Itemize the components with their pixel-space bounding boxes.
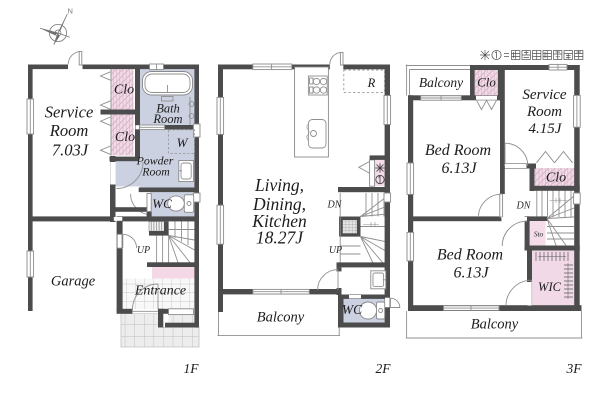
svg-text:Bed Room: Bed Room [425,142,491,159]
svg-text:3F: 3F [566,361,583,376]
svg-text:18.27J: 18.27J [256,228,304,248]
svg-text:Room: Room [526,104,562,120]
svg-text:Room: Room [152,112,182,126]
svg-text:Entrance: Entrance [134,284,186,299]
svg-text:Room: Room [49,121,89,140]
svg-text:UP: UP [137,245,150,256]
svg-text:WC: WC [152,196,172,211]
svg-text:N: N [68,7,73,16]
svg-text:DN: DN [327,200,343,211]
svg-text:7.03J: 7.03J [52,141,89,160]
svg-text:Clo: Clo [115,130,135,145]
svg-text:Room: Room [141,165,170,179]
svg-text:Clo: Clo [114,83,134,98]
svg-text:Living,: Living, [254,175,304,195]
svg-text:Clo: Clo [477,75,496,90]
svg-text:R: R [367,76,376,90]
svg-text:WIC: WIC [538,280,562,294]
svg-text:Garage: Garage [51,274,96,290]
svg-text:UP: UP [329,245,342,256]
svg-text:Service: Service [45,103,94,122]
svg-text:6.13J: 6.13J [441,160,477,177]
svg-text:Balcony: Balcony [471,317,519,333]
svg-text:Clo: Clo [546,171,566,186]
svg-text:6.13J: 6.13J [453,265,489,282]
svg-text:W: W [177,135,189,150]
svg-text:Service: Service [522,87,566,103]
svg-text:DN: DN [516,201,532,212]
svg-text:4.15J: 4.15J [529,121,563,137]
svg-text:Balcony: Balcony [419,75,463,90]
svg-text:WC: WC [342,302,363,317]
svg-text:Bed Room: Bed Room [437,247,503,264]
svg-text:Sto: Sto [534,230,544,239]
svg-text:1F: 1F [184,361,200,376]
svg-text:Balcony: Balcony [257,310,305,326]
svg-text:2F: 2F [376,361,392,376]
